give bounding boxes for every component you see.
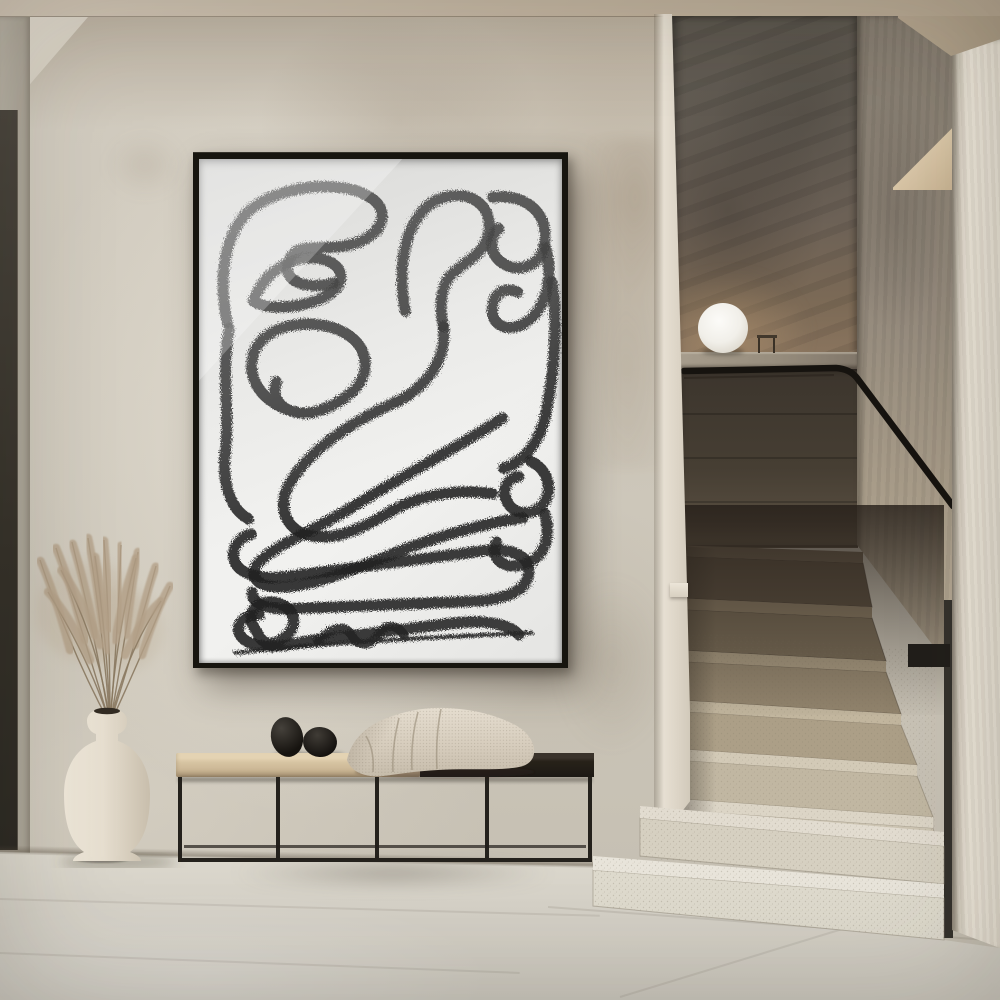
bench-leg xyxy=(485,777,489,862)
bench-back-rail xyxy=(184,845,586,848)
stringer-notch xyxy=(670,583,688,597)
bench-leg xyxy=(276,777,280,862)
sphere-lamp xyxy=(698,303,748,353)
foreground-column xyxy=(952,40,1000,950)
side-table-leg xyxy=(773,338,775,353)
upper-steps-in-shadow xyxy=(672,369,858,548)
ceiling xyxy=(0,0,1000,17)
vase-and-pampas-grass xyxy=(28,528,193,868)
poster-paper xyxy=(199,159,562,663)
bench xyxy=(176,700,596,870)
abstract-line-art-poster xyxy=(193,152,568,668)
ceramic-vase xyxy=(64,709,150,861)
throw-blanket xyxy=(340,700,540,785)
landing-side-table xyxy=(757,335,777,353)
bench-front-rail xyxy=(178,858,592,862)
landing-ledge xyxy=(672,352,858,369)
wall-smudge xyxy=(90,120,200,210)
dark-door-edge xyxy=(0,110,18,850)
interior-photo xyxy=(0,0,1000,1000)
side-table-leg xyxy=(758,338,760,353)
bench-leg xyxy=(588,777,592,862)
bench-leg xyxy=(375,777,379,862)
